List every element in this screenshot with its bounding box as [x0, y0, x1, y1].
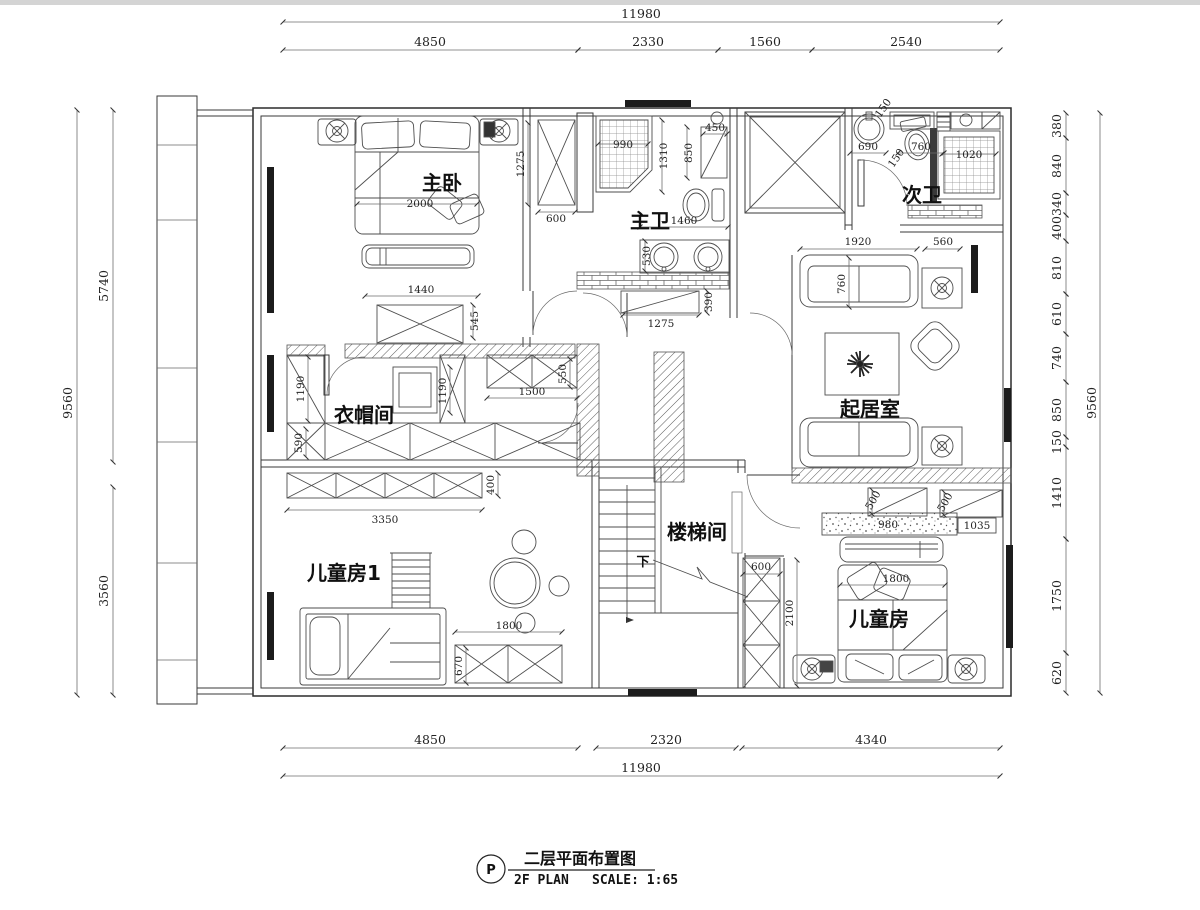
dim-label: 1800 [883, 573, 910, 585]
tv-cabinet-icon [377, 305, 463, 343]
washer-icon [951, 112, 982, 129]
dim-label: 760 [911, 141, 931, 153]
counter-icon [890, 112, 934, 129]
master-bedroom-furniture [318, 116, 575, 343]
dim-label: 760 [836, 274, 848, 294]
label-living-room: 起居室 [839, 397, 900, 421]
dim-label: 600 [546, 213, 566, 225]
label-kids-room-1: 儿童房1 [306, 561, 381, 585]
dim-label: 740 [1049, 346, 1064, 370]
dim-label: 340 [1049, 192, 1064, 216]
door-master-bedroom [533, 291, 577, 335]
dim-label: 1560 [749, 34, 781, 49]
dim-label: 590 [293, 433, 305, 453]
dim-label: 9560 [60, 387, 75, 419]
dim-label: 1750 [1049, 580, 1064, 612]
dim-label: 9560 [1084, 387, 1099, 419]
sofa-top-icon [800, 255, 918, 307]
bath-lower-cabinet-icon [621, 291, 699, 313]
dim-label: 4850 [414, 732, 446, 747]
master-wardrobe-icon [538, 120, 575, 205]
dim-label: 11980 [621, 6, 661, 21]
bath-cabinet-icon [701, 127, 727, 178]
dim-label: 5740 [96, 270, 111, 302]
stair-door-frame [732, 492, 742, 553]
dim-label: 670 [453, 656, 465, 676]
window-kids1 [267, 592, 274, 660]
window-living-ne [971, 245, 978, 293]
dim-label: 1190 [437, 378, 449, 405]
dim-label: 450 [705, 122, 725, 134]
dim-label: 980 [878, 519, 898, 531]
dim-label: 850 [683, 143, 695, 163]
dim-label: 810 [1049, 256, 1064, 280]
island-shelf-icon [393, 367, 437, 413]
kids-room-1-furniture [300, 530, 569, 685]
dim-label: 1020 [956, 149, 983, 161]
lower-cabinet-row-icon [287, 473, 482, 498]
plant-icon [847, 351, 873, 377]
title-block: P 二层平面布置图 2F PLAN SCALE: 1:65 [477, 849, 678, 888]
cloakroom-furniture [287, 355, 580, 498]
dim-label: 690 [858, 141, 878, 153]
left-facade-band [157, 96, 253, 704]
stair-hall-cabinet-icon [743, 558, 780, 688]
dim-label: 3350 [372, 514, 399, 526]
window-living-e [1004, 388, 1011, 442]
dim-label: 1460 [671, 215, 698, 227]
dim-label: 500 [863, 489, 883, 512]
dim-label: 3560 [96, 575, 111, 607]
dim-label: 2330 [632, 34, 664, 49]
plan-mark-letter: P [486, 863, 496, 878]
dim-label: 2540 [890, 34, 922, 49]
hatched-walls [287, 344, 1011, 483]
label-stairwell: 楼梯间 [667, 520, 727, 544]
window-top-edge [0, 0, 1200, 5]
dim-label: 4850 [414, 34, 446, 49]
plan-title-en: 2F PLAN [514, 873, 569, 888]
plan-scale: SCALE: 1:65 [592, 873, 678, 888]
window-kids-e [1006, 545, 1013, 648]
label-kids-room: 儿童房 [848, 607, 909, 631]
living-room-furniture [800, 255, 963, 467]
kids-room-furniture [793, 488, 1002, 683]
dim-label: 390 [703, 292, 715, 312]
dim-label: 620 [1049, 661, 1064, 685]
stair-direction-arrow [627, 485, 633, 620]
dim-label: 530 [641, 246, 653, 266]
dim-label: 2100 [784, 600, 796, 627]
window-bottom [628, 689, 697, 696]
dim-label: 4340 [855, 732, 887, 747]
towel-rack-icon [937, 112, 950, 131]
plan-title-cn: 二层平面布置图 [524, 849, 636, 868]
dim-label: 150 [886, 147, 907, 170]
window-top [625, 100, 691, 107]
dim-label: 500 [935, 491, 955, 514]
dim-label: 1410 [1049, 477, 1064, 509]
dim-label: 600 [751, 561, 771, 573]
label-secondary-bath: 次卫 [902, 183, 942, 207]
kids1-bed-icon [300, 608, 446, 685]
dim-label: 1275 [515, 151, 527, 178]
dim-label: 545 [469, 311, 481, 331]
floor-plan-page: 1198048502330156025404850232043401198095… [0, 0, 1200, 910]
tiled-wall [577, 272, 729, 289]
pouf-circles-icon [490, 530, 569, 633]
dim-label: 1275 [648, 318, 675, 330]
wardrobe-row-icon [287, 423, 580, 460]
dim-label: 2320 [650, 732, 682, 747]
door-master-bath [583, 293, 627, 337]
door-living [750, 313, 792, 355]
nightstand-right-icon [480, 119, 518, 145]
sofa-bottom-icon [800, 418, 918, 467]
label-cloakroom: 衣帽间 [334, 403, 394, 427]
double-vanity-icon [640, 240, 729, 273]
dim-label: 610 [1049, 302, 1064, 326]
label-stairs-down: 下 [636, 555, 649, 570]
door-secondary-bath [858, 160, 907, 206]
nightstand-left-icon [318, 119, 356, 145]
side-table-bottom-icon [922, 427, 962, 465]
master-bed-icon [355, 116, 485, 234]
dim-label: 1035 [964, 520, 991, 532]
dim-label: 990 [613, 139, 633, 151]
dim-label: 550 [557, 364, 569, 384]
kids-speaker-icon [820, 661, 833, 672]
kids-bench-icon [840, 537, 943, 562]
void-crossed-area [745, 112, 845, 213]
dim-label: 1500 [519, 386, 546, 398]
dim-label: 850 [1049, 398, 1064, 422]
coffee-table-icon [825, 333, 899, 395]
kids-nightstand-right-icon [948, 655, 985, 683]
kids1-cabinet-icon [455, 645, 562, 683]
dim-label: 11980 [621, 760, 661, 775]
dim-label: 1440 [408, 284, 435, 296]
dim-label: 840 [1049, 154, 1064, 178]
corner-shelf-icon [982, 112, 1000, 129]
dim-label: 400 [485, 475, 497, 495]
dim-label: 380 [1049, 114, 1064, 138]
stair-break-line [653, 560, 748, 597]
bed-ladder-icon [390, 553, 432, 608]
dim-label: 1190 [295, 376, 307, 403]
floor-plan-canvas: 1198048502330156025404850232043401198095… [0, 0, 1200, 910]
window-cloakroom [267, 355, 274, 432]
dim-label: 1310 [658, 143, 670, 170]
dim-label: 1800 [496, 620, 523, 632]
bed-bench-icon [362, 245, 474, 268]
dim-label: 2000 [407, 198, 434, 210]
dim-label: 560 [933, 236, 953, 248]
dim-label: 1920 [845, 236, 872, 248]
dim-label: 150 [1049, 430, 1064, 454]
accent-chair-icon [907, 318, 964, 375]
label-master-bedroom: 主卧 [422, 171, 462, 195]
shower-master-icon [596, 116, 652, 192]
window-master-bedroom [267, 167, 274, 313]
dim-label: 400 [1049, 216, 1064, 240]
door-cloakroom [324, 355, 365, 395]
label-master-bath: 主卫 [630, 209, 670, 233]
side-table-top-icon [922, 268, 962, 308]
shower-secondary-icon [938, 131, 1000, 199]
